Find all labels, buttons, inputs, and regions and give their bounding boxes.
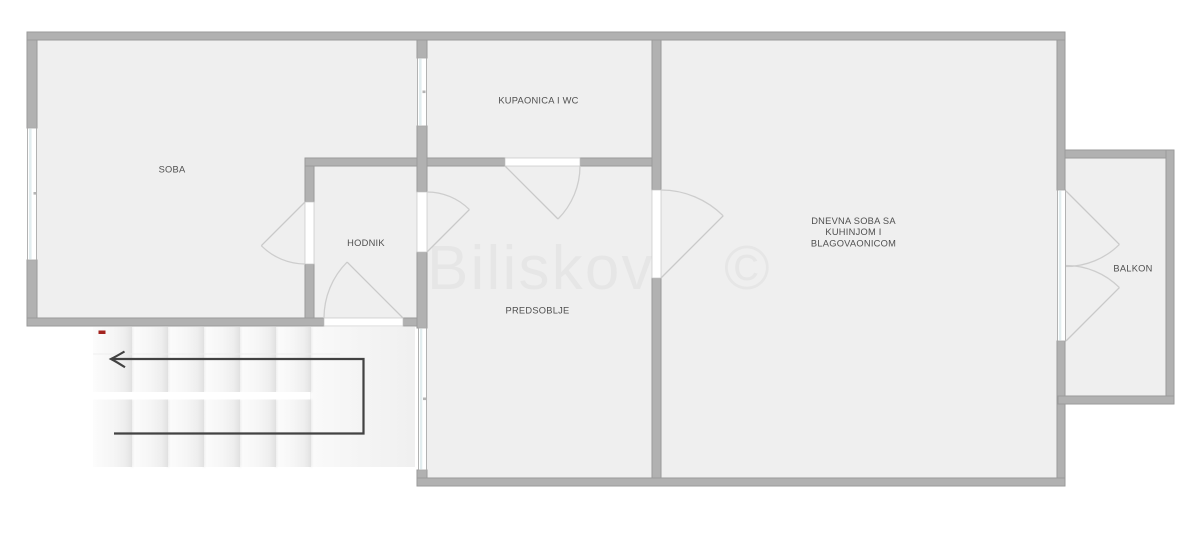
- svg-text:KUPAONICA I WC: KUPAONICA I WC: [498, 95, 578, 105]
- svg-text:PREDSOBLJE: PREDSOBLJE: [506, 306, 570, 316]
- svg-text:HODNIK: HODNIK: [347, 238, 385, 248]
- svg-text:SOBA: SOBA: [159, 165, 186, 175]
- svg-text:BALKON: BALKON: [1113, 264, 1152, 274]
